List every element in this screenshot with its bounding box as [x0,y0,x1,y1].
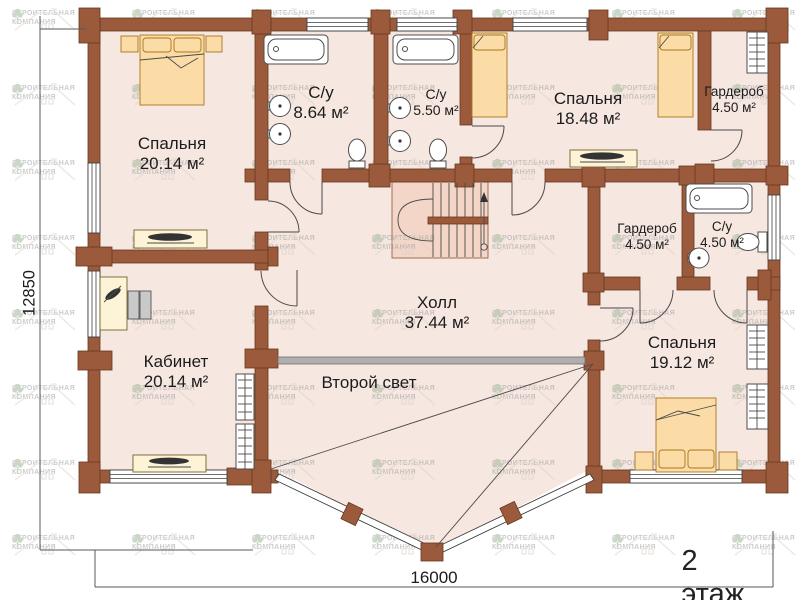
label-layer: Спальня 20.14 м² С/у 8.64 м² С/у 5.50 м²… [0,0,797,600]
floor-number-label: 2 этаж [682,545,759,600]
room-label-secondlight: Второй свет [322,373,417,393]
room-label-bath1: С/у 8.64 м² [293,83,348,122]
room-label-wardrobe2: Гардероб 4.50 м² [617,221,676,252]
room-label-bath2: С/у 5.50 м² [413,86,458,118]
room-label-hall: Холл 37.44 м² [405,293,470,332]
floor-plan-page: СТРОИТЕЛЬНАЯКОМПАНИЯСТРОИТЕЛЬНАЯКОМПАНИЯ… [0,0,797,600]
room-label-bath3: С/у 4.50 м² [700,219,744,250]
room-label-bedroom3: Спальня 19.12 м² [648,333,716,372]
room-label-bedroom2: Спальня 18.48 м² [554,89,622,128]
dimension-height-label: 12850 [21,270,40,316]
room-label-office: Кабинет 20.14 м² [144,352,209,391]
room-label-bedroom1: Спальня 20.14 м² [138,134,206,173]
room-label-wardrobe1: Гардероб 4.50 м² [704,84,763,115]
dimension-width-label: 16000 [410,568,457,588]
